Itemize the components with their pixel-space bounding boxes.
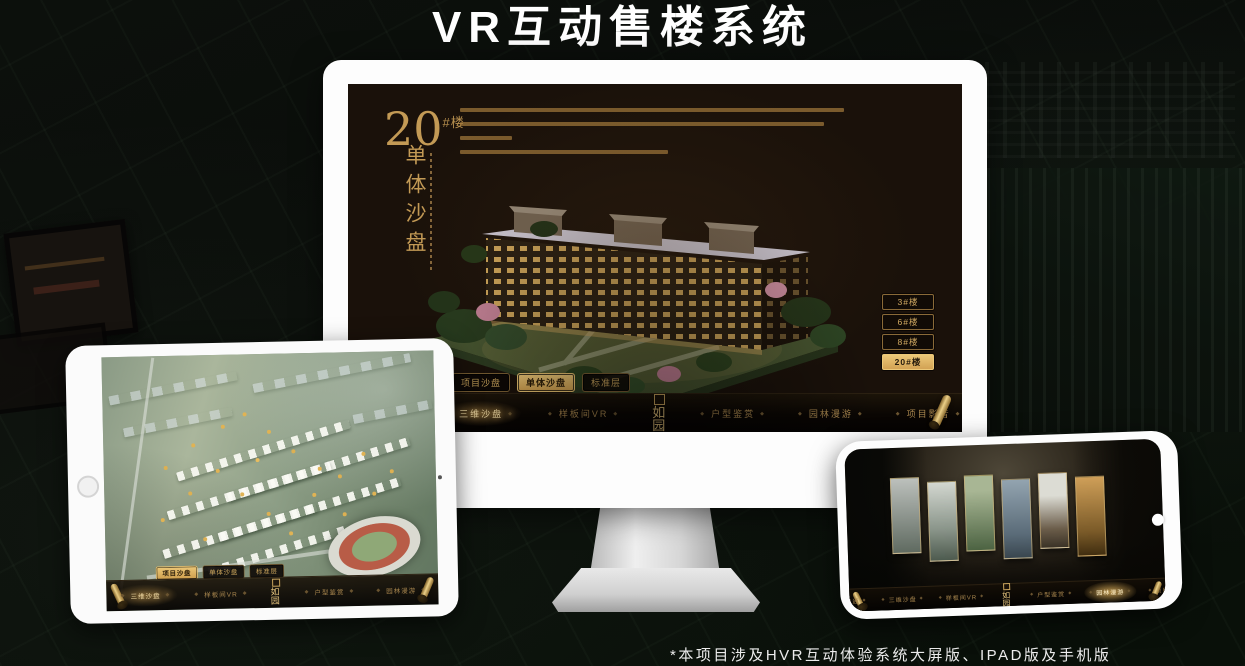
building-number-badges[interactable] — [221, 425, 225, 429]
gallery-panel[interactable] — [890, 477, 922, 554]
gallery-panel[interactable] — [1001, 478, 1033, 559]
brand-logo[interactable]: 如园 — [1002, 582, 1013, 607]
camera-icon — [438, 475, 442, 479]
background-buildings — [985, 62, 1235, 158]
nav-item-3d-sandbox[interactable]: 三维沙盘 — [878, 593, 926, 604]
footnote-text: *本项目涉及HVR互动体验系统大屏版、IPAD版及手机版 — [670, 644, 1111, 665]
nav-item-unit-appreciation[interactable]: 户型鉴赏 — [695, 407, 771, 420]
scene-gallery — [890, 471, 1107, 558]
floor-button-8[interactable]: 8#楼 — [882, 334, 934, 350]
seal-icon — [272, 579, 280, 587]
tablet-bottom-navbar: 区位交通 三维沙盘 样板间VR 如园 户型鉴赏 园林漫游 项目影音 — [106, 573, 439, 611]
seal-icon — [1003, 582, 1010, 589]
phone-screen: 区位交通 三维沙盘 样板间VR 如园 户型鉴赏 园林漫游 项目影音 — [844, 439, 1165, 612]
poster-title: VR互动售楼系统 — [0, 0, 1245, 56]
nav-item-3d-sandbox[interactable]: 三维沙盘 — [113, 584, 177, 607]
nav-item-model-room-vr[interactable]: 样板间VR — [543, 407, 624, 420]
tab-single-sandbox[interactable]: 单体沙盘 — [517, 373, 575, 392]
gallery-panel[interactable] — [964, 475, 996, 552]
poster-canvas: VR互动售楼系统 20#楼 单体沙盘 — [0, 0, 1245, 666]
brand-logo[interactable]: 如园 — [652, 394, 667, 433]
background-photo — [987, 168, 1245, 432]
floor-button-20[interactable]: 20#楼 — [882, 354, 934, 370]
phone-device: 区位交通 三维沙盘 样板间VR 如园 户型鉴赏 园林漫游 项目影音 — [835, 430, 1183, 620]
gallery-panel[interactable] — [927, 481, 959, 562]
tab-standard-floor[interactable]: 标准层 — [582, 373, 630, 392]
floor-button-group: 3#楼 6#楼 8#楼 20#楼 — [882, 294, 936, 374]
nav-item-model-room-vr[interactable]: 样板间VR — [189, 588, 252, 599]
tab-project-sandbox[interactable]: 项目沙盘 — [452, 373, 510, 392]
brand-logo[interactable]: 如园 — [270, 579, 282, 607]
floor-button-6[interactable]: 6#楼 — [882, 314, 934, 330]
logo-text: 如园 — [271, 589, 282, 607]
gallery-panel[interactable] — [1038, 472, 1070, 549]
monitor-stand-base — [552, 568, 760, 612]
monitor-subtab-bar: 项目沙盘 单体沙盘 标准层 — [452, 373, 630, 392]
monitor-stand-neck — [590, 506, 720, 574]
nav-item-location-transport[interactable]: 区位交通 — [844, 595, 869, 606]
home-button[interactable] — [77, 475, 99, 497]
phone-bottom-navbar: 区位交通 三维沙盘 样板间VR 如园 户型鉴赏 园林漫游 项目影音 — [849, 578, 1166, 612]
tablet-device: 项目沙盘 单体沙盘 标准层 区位交通 三维沙盘 样板间VR 如园 户型鉴赏 园林… — [65, 338, 459, 624]
nav-item-garden-roam[interactable]: 园林漫游 — [1084, 580, 1137, 603]
nav-item-unit-appreciation[interactable]: 户型鉴赏 — [1027, 588, 1075, 599]
logo-text: 如园 — [1002, 591, 1013, 607]
logo-text: 如园 — [652, 407, 667, 433]
nav-item-project-media[interactable]: 项目影音 — [891, 407, 962, 420]
nav-item-garden-roam[interactable]: 园林漫游 — [793, 407, 869, 420]
nav-item-unit-appreciation[interactable]: 户型鉴赏 — [300, 586, 360, 597]
floor-button-3[interactable]: 3#楼 — [882, 294, 934, 310]
nav-item-model-room-vr[interactable]: 样板间VR — [936, 591, 988, 602]
seal-icon — [654, 394, 665, 405]
tablet-screen: 项目沙盘 单体沙盘 标准层 区位交通 三维沙盘 样板间VR 如园 户型鉴赏 园林… — [101, 350, 438, 611]
gallery-panel[interactable] — [1075, 476, 1107, 557]
